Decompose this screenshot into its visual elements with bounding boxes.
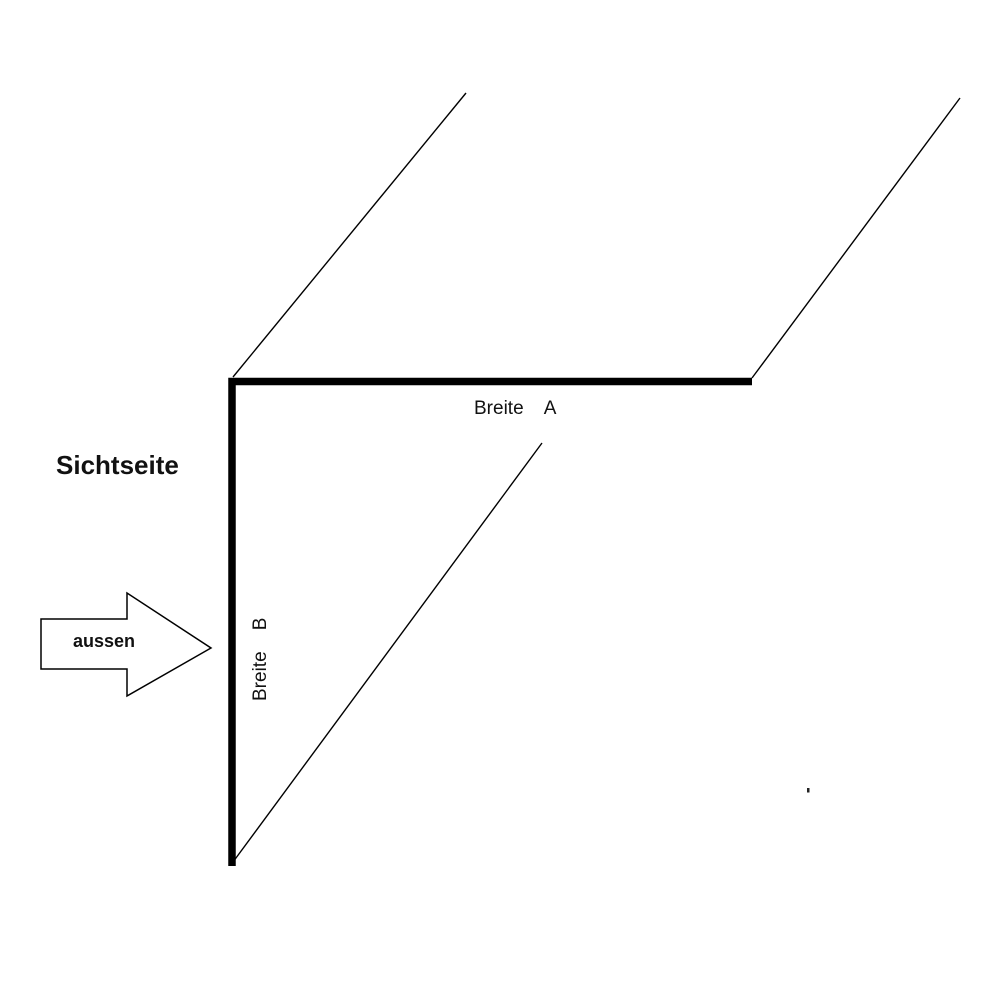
stray-mark [807, 788, 810, 793]
profile-drawing [0, 0, 1000, 1000]
sichtseite-label: Sichtseite [56, 451, 179, 481]
depth-line-top-right [752, 98, 960, 378]
profile-front-edge [232, 382, 752, 867]
depth-line-bottom [233, 443, 542, 862]
diagram-canvas: Sichtseite Breite A Breite B aussen [0, 0, 1000, 1000]
breite-b-label: Breite B [250, 618, 272, 701]
depth-line-top-left [233, 93, 466, 377]
breite-a-label: Breite A [474, 398, 556, 420]
aussen-label: aussen [50, 631, 158, 652]
